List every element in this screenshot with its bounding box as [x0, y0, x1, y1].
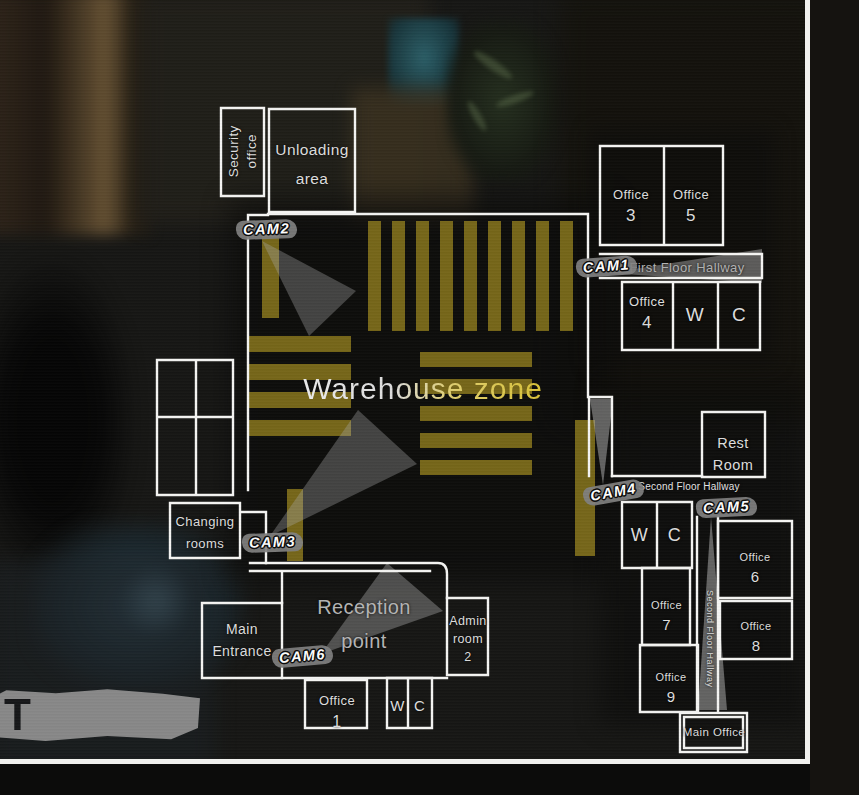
cctv-floor-plan-screen: T: [0, 0, 859, 795]
room-label-c-first: C: [719, 302, 759, 328]
room-label-admin-room: Admin room 2: [448, 612, 488, 666]
room-label-office9: Office 9: [644, 670, 698, 707]
wall-lockers: [157, 360, 233, 495]
room-label-office5: Office 5: [663, 186, 719, 227]
room-label-c-second: C: [657, 523, 692, 547]
room-label-main-office: Main Office: [682, 725, 746, 741]
cam3-label[interactable]: CAM3: [242, 532, 304, 553]
room-label-w-second: W: [622, 523, 657, 547]
room-label-security-office: Security office: [225, 106, 261, 196]
zone-label-second-floor-hallway-vertical: Second Floor Hallway: [699, 563, 716, 715]
room-label-office3: Office 3: [603, 186, 659, 227]
room-label-office4: Office 4: [621, 293, 673, 334]
outside-frame-right: [810, 0, 859, 795]
room-label-office7: Office 7: [643, 598, 690, 635]
zone-label-warehouse: Warehouse zone: [301, 369, 545, 410]
room-label-changing-rooms: Changing rooms: [167, 511, 243, 555]
cam5-label[interactable]: CAM5: [696, 496, 758, 518]
room-label-rest-room: Rest Room: [701, 432, 765, 477]
room-label-office8: Office 8: [723, 619, 789, 656]
room-label-c-ground: C: [407, 696, 432, 716]
room-label-unloading-area: Unloading area: [268, 136, 356, 193]
zone-label-second-floor-hallway: Second Floor Hallway: [630, 480, 748, 494]
cam2-label[interactable]: CAM2: [236, 219, 298, 240]
room-label-w-first: W: [675, 302, 715, 328]
outside-frame-bottom: [0, 764, 810, 795]
room-label-main-entrance: Main Entrance: [203, 618, 281, 663]
room-label-office6: Office 6: [722, 550, 788, 587]
room-label-office1: Office 1: [306, 692, 368, 732]
